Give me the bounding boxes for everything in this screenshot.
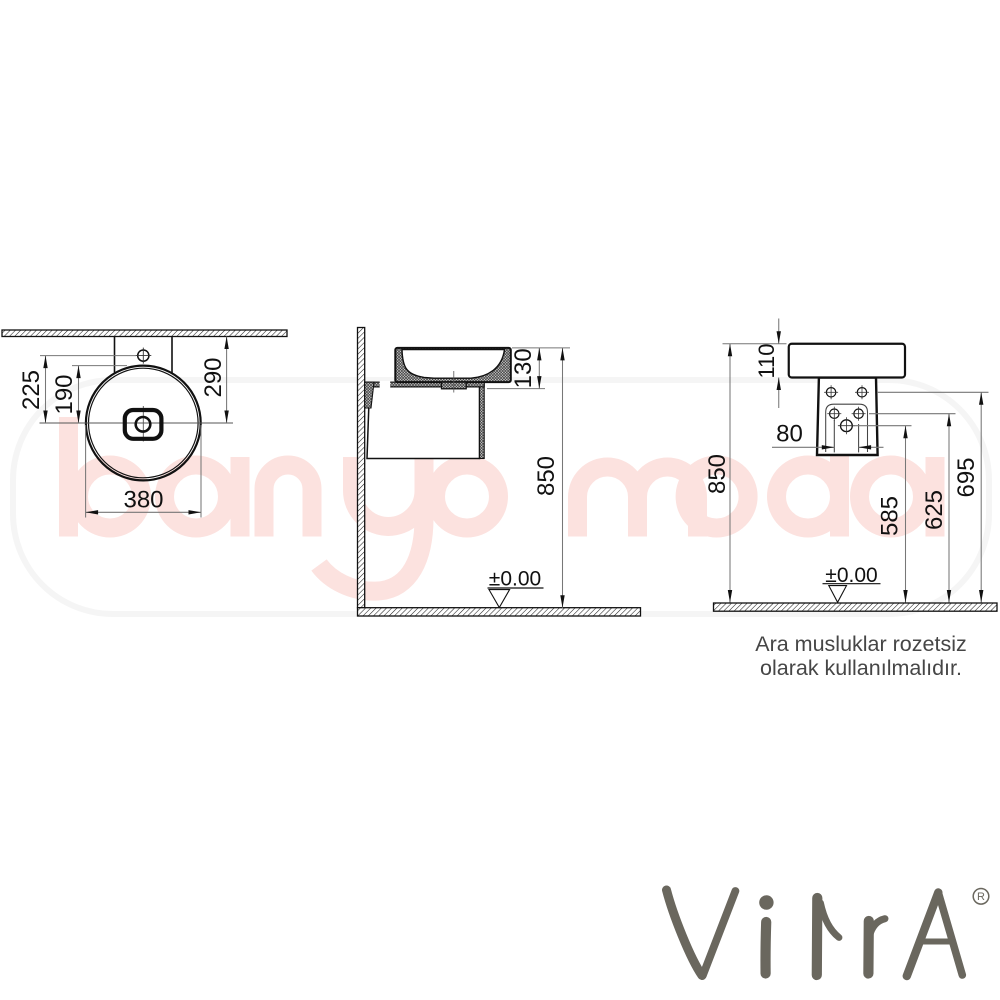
svg-text:380: 380 <box>123 487 163 514</box>
svg-text:80: 80 <box>776 421 803 448</box>
svg-text:850: 850 <box>704 454 731 494</box>
svg-text:850: 850 <box>533 456 560 496</box>
svg-text:290: 290 <box>200 357 227 397</box>
svg-text:585: 585 <box>877 496 904 536</box>
svg-text:695: 695 <box>953 457 980 497</box>
svg-text:225: 225 <box>18 370 45 410</box>
svg-text:190: 190 <box>51 374 78 414</box>
svg-text:110: 110 <box>754 343 779 378</box>
svg-text:Ara musluklar rozetsiz: Ara musluklar rozetsiz <box>755 632 966 656</box>
svg-text:R: R <box>977 891 985 903</box>
svg-text:130: 130 <box>510 348 537 388</box>
svg-text:±0.00: ±0.00 <box>489 568 541 591</box>
svg-text:olarak kullanılmalıdır.: olarak kullanılmalıdır. <box>760 656 962 680</box>
svg-text:625: 625 <box>921 490 948 530</box>
